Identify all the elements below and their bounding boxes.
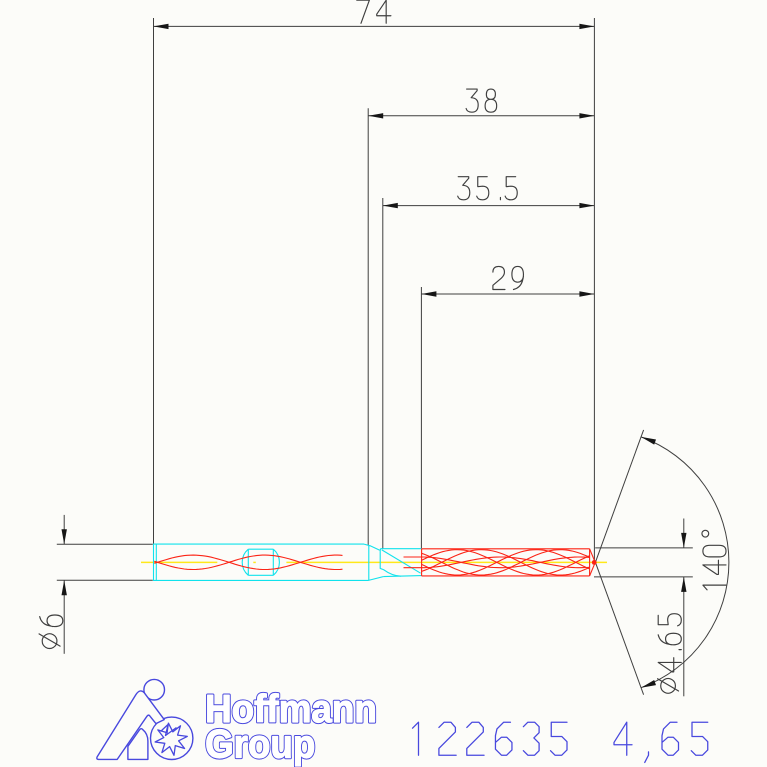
svg-text:Group: Group	[205, 723, 315, 767]
